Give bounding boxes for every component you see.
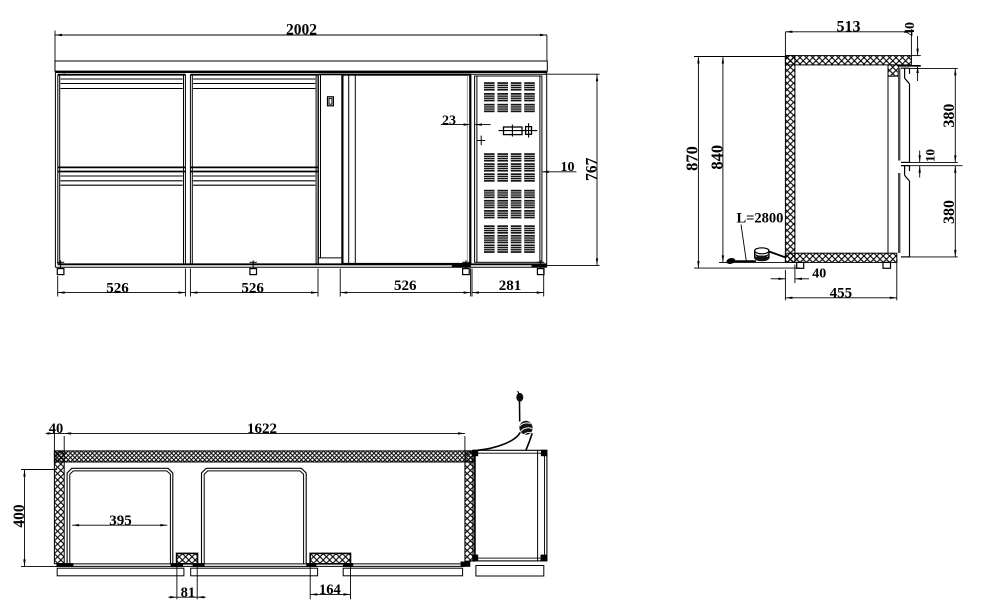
svg-text:455: 455 (830, 285, 853, 301)
svg-text:526: 526 (106, 280, 129, 296)
svg-text:526: 526 (394, 278, 417, 294)
svg-text:40: 40 (903, 22, 918, 36)
svg-text:380: 380 (941, 104, 958, 128)
svg-text:23: 23 (442, 113, 456, 128)
svg-text:526: 526 (241, 280, 264, 296)
svg-text:400: 400 (11, 504, 28, 528)
svg-text:840: 840 (708, 145, 727, 170)
svg-text:395: 395 (109, 513, 132, 529)
svg-text:513: 513 (837, 19, 861, 36)
svg-text:81: 81 (181, 585, 196, 601)
svg-text:10: 10 (923, 149, 938, 162)
svg-text:40: 40 (49, 421, 64, 437)
svg-text:10: 10 (561, 160, 575, 175)
svg-text:2002: 2002 (286, 22, 317, 39)
svg-text:1622: 1622 (247, 421, 277, 437)
svg-text:767: 767 (583, 157, 600, 181)
svg-text:164: 164 (319, 582, 341, 598)
svg-text:380: 380 (941, 200, 958, 224)
svg-text:281: 281 (499, 278, 522, 294)
svg-text:870: 870 (683, 146, 702, 171)
svg-text:40: 40 (812, 267, 826, 282)
svg-text:L=2800: L=2800 (737, 211, 784, 227)
